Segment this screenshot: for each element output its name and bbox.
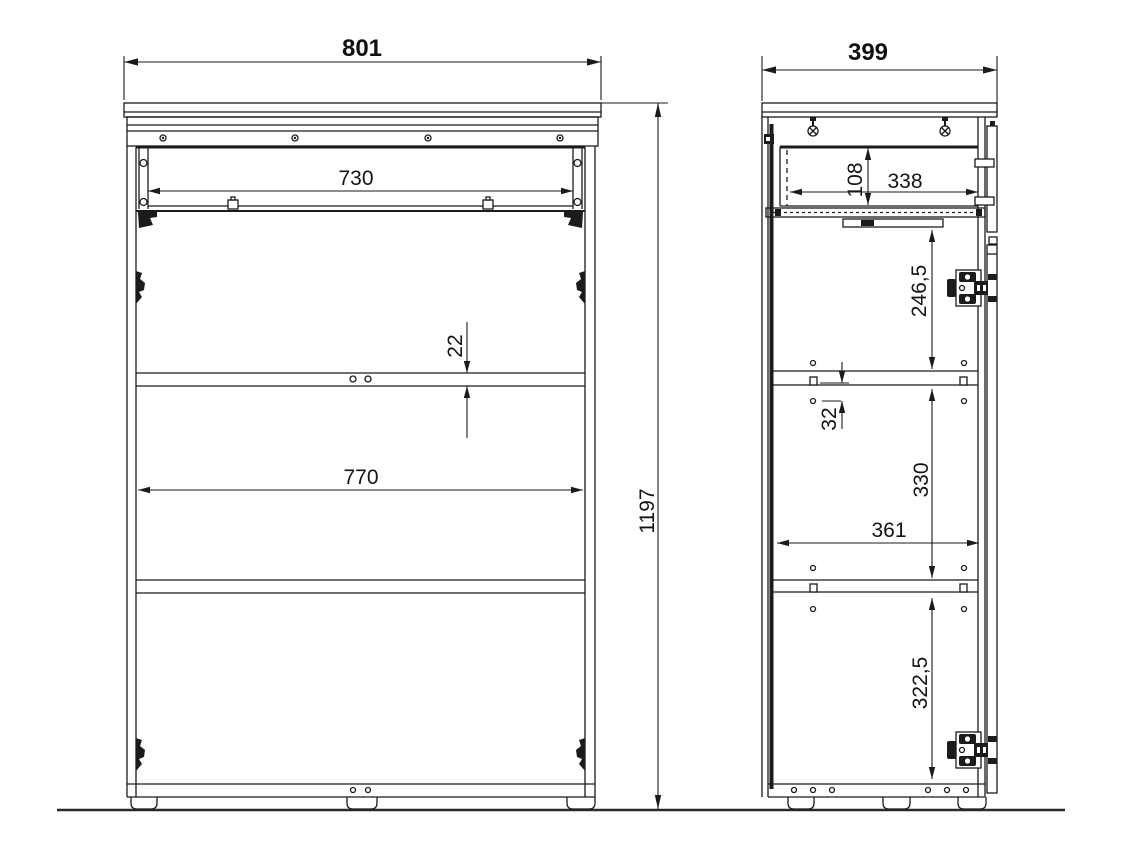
shelf-peg (810, 584, 817, 592)
dim-side-interior-depth: 361 (777, 519, 979, 546)
front-view: 801 730 22 770 (124, 35, 668, 809)
side-top-panel (762, 103, 997, 117)
dim-label-shelf-thickness: 22 (444, 334, 467, 357)
foot (567, 797, 595, 809)
dim-label-middle-section: 330 (910, 462, 933, 497)
dim-label-overall-width: 801 (342, 35, 382, 62)
side-bottom-screw-holes (792, 788, 969, 793)
dim-front-drawer-width: 730 (148, 167, 573, 194)
side-feet (788, 797, 986, 809)
side-drawer-front (987, 126, 997, 232)
foot (883, 797, 910, 809)
drawer-front-bracket (975, 159, 994, 167)
dim-front-overall-height: 1197 (601, 103, 668, 809)
dim-label-drawer-depth: 338 (887, 170, 922, 193)
front-hinge-plates (136, 271, 585, 771)
drawer-slide-bracket-right (564, 212, 583, 228)
dim-label-overall-depth: 399 (848, 39, 888, 66)
side-shelves (773, 361, 978, 612)
side-door-front (987, 245, 997, 793)
drawer-slide-hole (574, 160, 581, 167)
side-drawer-slide (766, 208, 985, 227)
drawer-front-bracket (975, 197, 994, 205)
drawer-slide-hole (574, 199, 581, 206)
side-view: 399 108 338 246,5 (762, 39, 997, 809)
side-carcass (762, 103, 997, 797)
dim-side-upper-section: 246,5 (908, 230, 935, 369)
dim-front-interior-width: 770 (138, 466, 583, 493)
side-door (987, 237, 997, 793)
side-top-fittings (808, 117, 950, 136)
dim-label-lower-section: 322,5 (909, 657, 932, 710)
drawer-slide-hole (140, 160, 147, 167)
drawer-bottom-clip (483, 200, 493, 209)
foot (958, 797, 986, 809)
dim-front-overall-width: 801 (124, 35, 601, 100)
front-rail-screws (160, 135, 563, 141)
drawing-canvas: 801 730 22 770 (0, 0, 1143, 857)
front-top-panel (124, 103, 601, 117)
drawer-slide-hole (140, 199, 147, 206)
drawer-slide-bracket-left (138, 212, 157, 228)
front-feet (131, 797, 595, 809)
dim-label-overall-height: 1197 (636, 488, 659, 533)
dim-side-drawer-height: 108 (844, 148, 871, 205)
dim-side-lower-section: 322,5 (909, 598, 935, 779)
dim-label-interior-depth: 361 (871, 519, 906, 542)
dim-side-drawer-depth: 338 (790, 170, 978, 195)
dim-label-interior-width: 770 (343, 466, 378, 489)
technical-drawing-svg: 801 730 22 770 (0, 0, 1143, 857)
side-drawer (766, 121, 997, 232)
shelf-peg (960, 584, 967, 592)
dim-label-hole-pitch: 32 (818, 407, 841, 430)
shelf-peg (810, 377, 817, 385)
drawer-bottom-clip (228, 200, 238, 209)
side-back-panel (770, 124, 774, 789)
front-carcass (124, 103, 601, 797)
foot (347, 797, 377, 809)
dim-label-upper-section: 246,5 (908, 265, 931, 318)
dim-side-hole-pitch: 32 (818, 362, 849, 431)
shelf-peg (960, 377, 967, 385)
dim-front-shelf-thickness: 22 (444, 322, 470, 438)
dim-side-overall-depth: 399 (762, 39, 997, 117)
dim-side-middle-section: 330 (910, 389, 935, 578)
foot (788, 797, 814, 809)
foot (131, 797, 157, 809)
dim-label-drawer-width: 730 (338, 167, 373, 190)
